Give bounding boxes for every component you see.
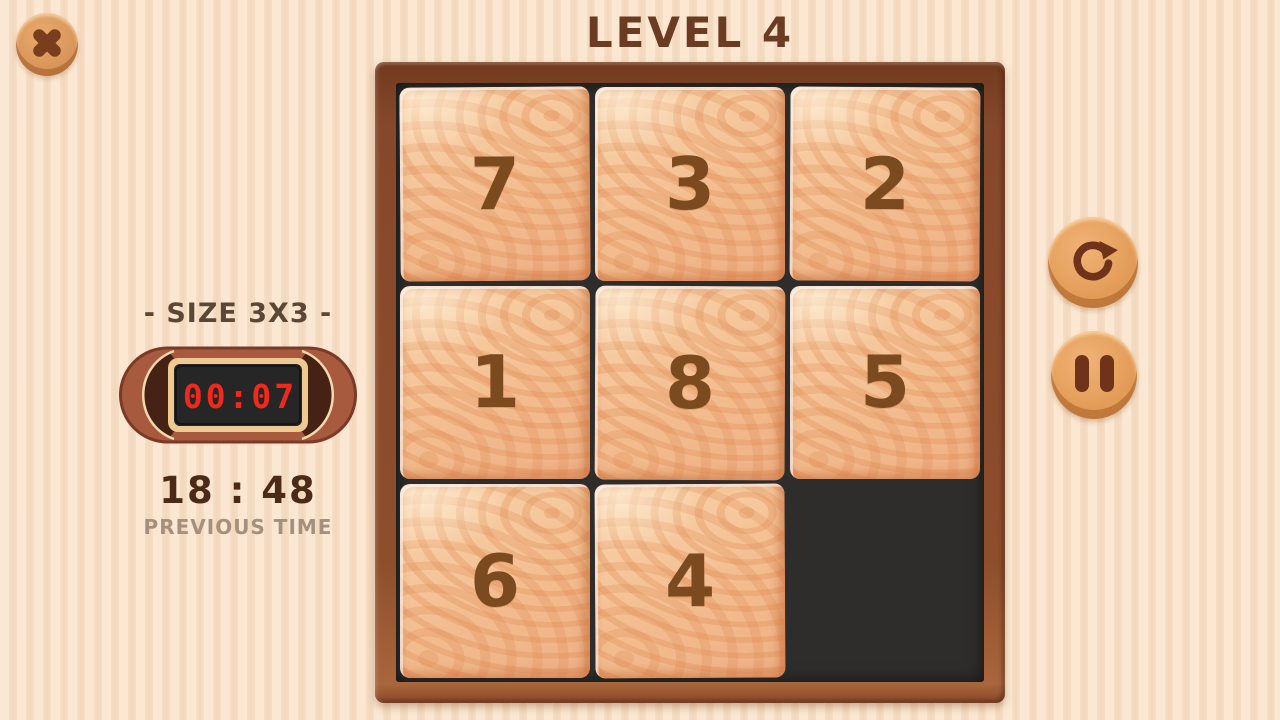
- previous-time-label: PREVIOUS TIME: [105, 515, 371, 539]
- game-screen: LEVEL 4 - SIZE 3X3 - 00:07 18 : 48 PREVI…: [0, 0, 1280, 720]
- previous-time-value: 18 : 48: [105, 469, 371, 512]
- empty-cell: [790, 484, 980, 678]
- level-title: LEVEL 4: [375, 8, 1005, 57]
- timer-clock-graphic: 00:07: [118, 345, 358, 445]
- puzzle-tile[interactable]: 2: [789, 87, 980, 282]
- close-icon: [29, 25, 65, 61]
- tile-number: 1: [470, 340, 520, 424]
- puzzle-tile[interactable]: 8: [595, 285, 786, 479]
- close-button[interactable]: [16, 13, 78, 76]
- puzzle-board: 7 3 2 1 8 5 6 4: [375, 62, 1005, 703]
- puzzle-tile[interactable]: 5: [790, 286, 980, 480]
- pause-icon: [1075, 355, 1114, 392]
- puzzle-tile[interactable]: 3: [595, 87, 785, 281]
- puzzle-tile[interactable]: 7: [399, 86, 590, 281]
- tile-number: 3: [665, 142, 715, 226]
- left-panel: - SIZE 3X3 - 00:07 18 : 48 PREVIOUS TIME: [105, 298, 371, 539]
- tile-number: 4: [665, 539, 716, 623]
- size-label: - SIZE 3X3 -: [105, 298, 371, 329]
- puzzle-tile[interactable]: 6: [400, 484, 590, 678]
- restart-button[interactable]: [1048, 217, 1138, 308]
- puzzle-grid: 7 3 2 1 8 5 6 4: [396, 83, 984, 682]
- tile-number: 8: [665, 340, 715, 424]
- timer-clock: 00:07: [118, 345, 358, 445]
- tile-number: 6: [470, 539, 520, 623]
- timer-value: 00:07: [183, 377, 297, 416]
- pause-button[interactable]: [1051, 331, 1137, 419]
- tile-number: 7: [470, 142, 521, 226]
- restart-icon: [1067, 235, 1119, 287]
- tile-number: 2: [860, 142, 911, 226]
- tile-number: 5: [860, 340, 910, 424]
- puzzle-tile[interactable]: 4: [594, 484, 785, 679]
- puzzle-tile[interactable]: 1: [400, 286, 590, 480]
